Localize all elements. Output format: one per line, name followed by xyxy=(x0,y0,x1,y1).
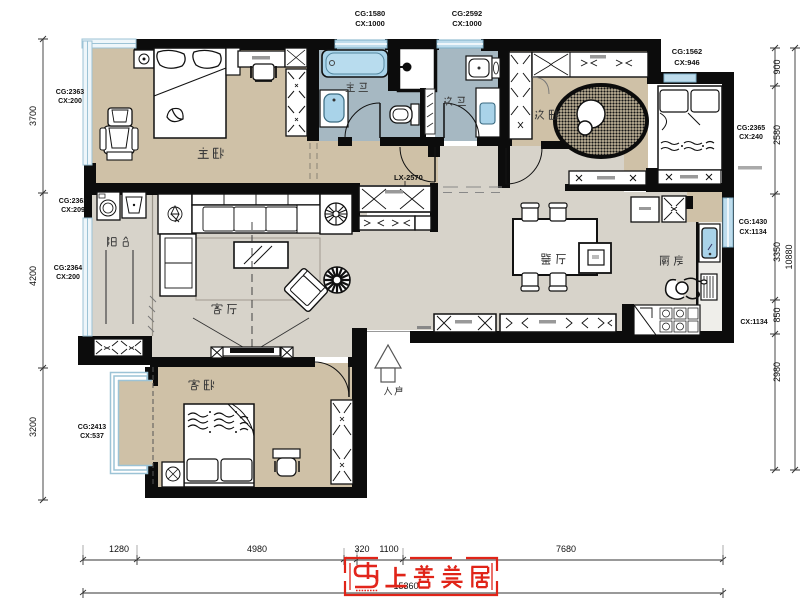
svg-text:CX:946: CX:946 xyxy=(674,58,699,67)
svg-text:CX:200: CX:200 xyxy=(56,274,80,281)
svg-text:900: 900 xyxy=(772,59,782,74)
svg-text:CX:1000: CX:1000 xyxy=(452,19,482,28)
svg-text:CX:200: CX:200 xyxy=(58,98,82,105)
svg-text:320: 320 xyxy=(354,544,369,554)
svg-text:2980: 2980 xyxy=(772,362,782,382)
svg-text:1100: 1100 xyxy=(379,544,398,554)
svg-text:CG:1430: CG:1430 xyxy=(739,219,768,226)
svg-text:1280: 1280 xyxy=(109,544,129,554)
svg-text:CG:2363: CG:2363 xyxy=(59,198,88,205)
svg-text:3350: 3350 xyxy=(772,242,782,262)
svg-text:CG:1562: CG:1562 xyxy=(672,47,702,56)
svg-text:CX:1134: CX:1134 xyxy=(740,319,767,326)
svg-text:CG:2413: CG:2413 xyxy=(78,424,107,431)
svg-text:10880: 10880 xyxy=(784,244,794,269)
svg-text:4980: 4980 xyxy=(247,544,267,554)
svg-text:CX:1000: CX:1000 xyxy=(355,19,385,28)
svg-text:CG:1580: CG:1580 xyxy=(355,9,385,18)
svg-text:CX:209: CX:209 xyxy=(61,207,85,214)
svg-text:7680: 7680 xyxy=(556,544,576,554)
svg-text:3200: 3200 xyxy=(28,417,38,437)
svg-text:CX:240: CX:240 xyxy=(739,134,763,141)
svg-text:2580: 2580 xyxy=(772,125,782,145)
svg-text:3700: 3700 xyxy=(28,106,38,126)
svg-text:LX-2570: LX-2570 xyxy=(394,173,423,182)
svg-text:CX:537: CX:537 xyxy=(80,433,104,440)
svg-text:CX:1134: CX:1134 xyxy=(739,229,766,236)
svg-text:CG:2365: CG:2365 xyxy=(737,125,766,132)
svg-text:4200: 4200 xyxy=(28,266,38,286)
svg-text:CG:2592: CG:2592 xyxy=(452,9,482,18)
svg-text:CG:2364: CG:2364 xyxy=(54,265,83,272)
svg-text:CG:2363: CG:2363 xyxy=(56,89,85,96)
svg-text:850: 850 xyxy=(772,307,782,322)
